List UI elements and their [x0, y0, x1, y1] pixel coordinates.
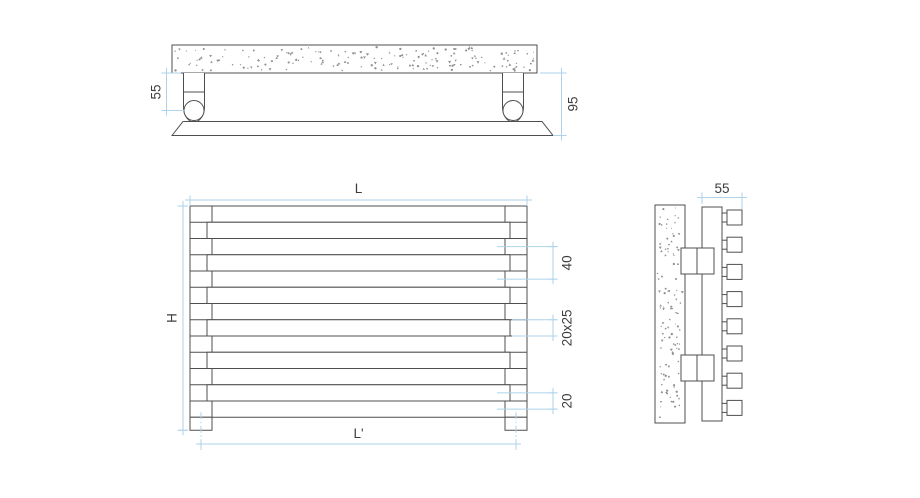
radiator-panel-top: [172, 122, 553, 136]
dim-label-total-depth: 95: [566, 96, 581, 111]
dim-label-width: L: [355, 181, 363, 196]
dim-label-tube-pitch: 40: [560, 255, 575, 270]
wall-section-top: [172, 45, 537, 73]
dim-label-depth: 55: [714, 181, 729, 196]
radiator-body-front: [190, 206, 527, 450]
mounting-brackets-top: [184, 73, 524, 122]
technical-drawing-canvas: 55 95 L H L' 40 20x25 20 55: [0, 0, 920, 498]
dim-label-connection-offset: 20: [560, 393, 575, 408]
collector-and-tubes-side: [681, 207, 742, 421]
dim-label-tube-section: 20x25: [560, 310, 575, 347]
dim-label-height: H: [165, 313, 180, 323]
dim-label-bracket-offset: 55: [149, 84, 164, 99]
dim-label-connection-width: L': [353, 426, 363, 441]
radiator-technical-drawing: 55 95 L H L' 40 20x25 20 55: [0, 0, 920, 498]
front-view: L H L' 40 20x25 20: [165, 181, 575, 450]
wall-section-side: [655, 205, 685, 423]
top-view: 55 95: [149, 45, 581, 141]
side-view: 55: [655, 181, 747, 423]
